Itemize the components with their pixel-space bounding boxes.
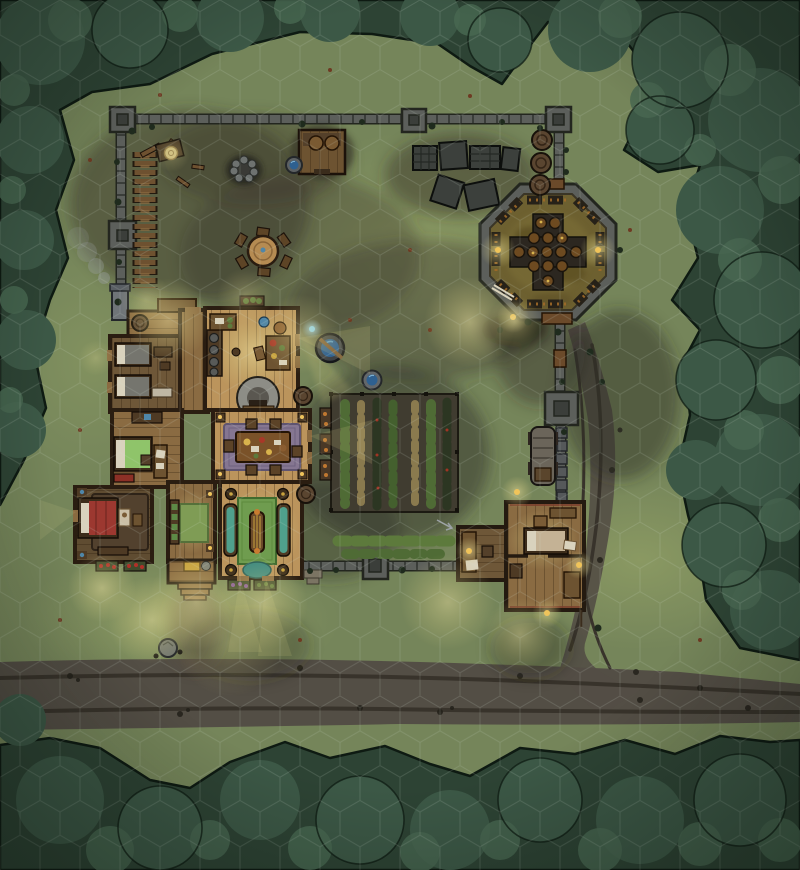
vignette <box>0 0 800 870</box>
battlemap-svg <box>0 0 800 870</box>
battlemap-canvas[interactable] <box>0 0 800 870</box>
